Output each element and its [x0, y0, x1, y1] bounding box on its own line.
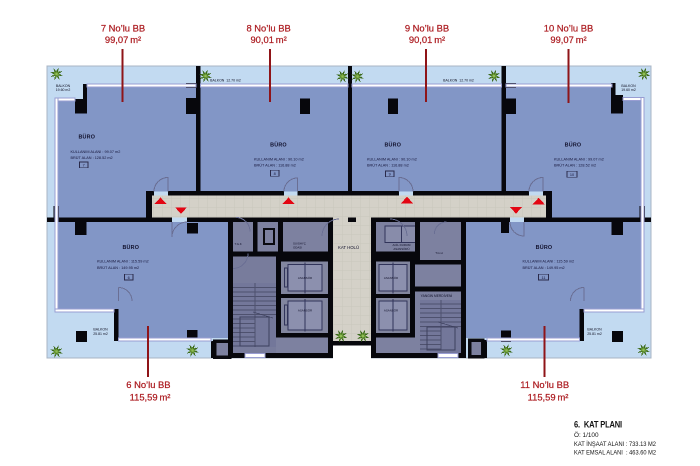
svg-text:10: 10 — [570, 173, 574, 177]
svg-text:BÜRO: BÜRO — [122, 244, 139, 251]
svg-text:BALKON: BALKON — [93, 328, 108, 332]
svg-text:BALKON: BALKON — [56, 84, 71, 88]
svg-text:BALKON 12.70 m2: BALKON 12.70 m2 — [210, 79, 241, 83]
svg-text:25.81 m2: 25.81 m2 — [587, 332, 602, 336]
svg-text:KULLANIM ALANI : 99.07 m2: KULLANIM ALANI : 99.07 m2 — [71, 150, 121, 154]
svg-text:T.G.H: T.G.H — [435, 251, 442, 255]
svg-text:9: 9 — [389, 173, 391, 177]
svg-text:KULLANIM ALANI : 99.07 m2: KULLANIM ALANI : 99.07 m2 — [554, 158, 604, 162]
svg-text:ASANSÖR: ASANSÖR — [384, 276, 398, 280]
svg-text:KULLANIM ALANI : 115.59 m2: KULLANIM ALANI : 115.59 m2 — [97, 259, 149, 263]
svg-text:BÜRO: BÜRO — [270, 141, 287, 148]
svg-text:KULLANIM ALANI : 115.59 m2: KULLANIM ALANI : 115.59 m2 — [523, 259, 575, 263]
svg-text:7 No’lu BB: 7 No’lu BB — [101, 23, 145, 34]
svg-text:6 No’lu BB: 6 No’lu BB — [126, 379, 170, 390]
svg-text:BRÜT ALAN : 149.95 m2: BRÜT ALAN : 149.95 m2 — [97, 266, 139, 270]
svg-text:99,07 m²: 99,07 m² — [105, 34, 141, 45]
svg-text:90,01 m²: 90,01 m² — [409, 34, 445, 45]
svg-text:ASANSÖRÜ: ASANSÖRÜ — [393, 247, 409, 251]
svg-text:6. KAT PLANI: 6. KAT PLANI — [574, 419, 622, 430]
svg-text:KULLANIM ALANI : 90.10 m2: KULLANIM ALANI : 90.10 m2 — [254, 158, 304, 162]
svg-text:KAT EMSAL ALANI : 463.60 M2: KAT EMSAL ALANI : 463.60 M2 — [574, 450, 656, 457]
svg-text:BRÜT ALAN : 128.52 m2: BRÜT ALAN : 128.52 m2 — [71, 156, 113, 160]
svg-text:BÜRO: BÜRO — [565, 141, 582, 148]
svg-text:115,59 m²: 115,59 m² — [528, 392, 569, 403]
svg-text:BRÜT ALAN : 149.95 m2: BRÜT ALAN : 149.95 m2 — [523, 266, 565, 270]
svg-text:BALKON: BALKON — [621, 84, 636, 88]
svg-text:99,07 m²: 99,07 m² — [550, 34, 586, 45]
svg-text:BRÜT ALAN : 128.52 m2: BRÜT ALAN : 128.52 m2 — [554, 163, 596, 167]
svg-text:10 No’lu BB: 10 No’lu BB — [544, 23, 594, 34]
svg-text:KULLANIM ALANI : 90.10 m2: KULLANIM ALANI : 90.10 m2 — [367, 158, 417, 162]
svg-text:19.60 m2: 19.60 m2 — [621, 88, 636, 92]
svg-text:ASANSÖR: ASANSÖR — [298, 309, 312, 313]
svg-text:BRÜT ALAN : 116.88 m2: BRÜT ALAN : 116.88 m2 — [254, 163, 296, 167]
svg-text:11: 11 — [542, 276, 546, 280]
svg-text:BALKON: BALKON — [587, 328, 602, 332]
svg-text:ODASI: ODASI — [293, 245, 302, 249]
svg-text:7: 7 — [83, 164, 85, 168]
svg-text:T.G.K: T.G.K — [235, 242, 242, 246]
svg-text:25.81 m2: 25.81 m2 — [93, 332, 108, 336]
svg-text:8 No’lu BB: 8 No’lu BB — [246, 23, 290, 34]
svg-text:BÜRO: BÜRO — [536, 244, 553, 251]
svg-text:YANGIN MERDİVENİ: YANGIN MERDİVENİ — [421, 293, 453, 298]
svg-text:11 No’lu BB: 11 No’lu BB — [520, 379, 569, 390]
svg-text:9 No’lu BB: 9 No’lu BB — [405, 23, 449, 34]
svg-text:19.60 m2: 19.60 m2 — [56, 88, 71, 92]
svg-text:KAT İNŞAAT ALANI : 733.13 M2: KAT İNŞAAT ALANI : 733.13 M2 — [574, 439, 656, 448]
svg-text:BALKON 12.70 m2: BALKON 12.70 m2 — [443, 79, 474, 83]
svg-text:BÜRO: BÜRO — [78, 133, 95, 140]
svg-text:ASANSÖR: ASANSÖR — [384, 309, 398, 313]
svg-text:90,01 m²: 90,01 m² — [250, 34, 286, 45]
svg-text:Ö: 1/100: Ö: 1/100 — [574, 431, 599, 439]
svg-text:BRÜT ALAN : 116.88 m2: BRÜT ALAN : 116.88 m2 — [367, 163, 409, 167]
svg-text:8: 8 — [274, 172, 276, 176]
svg-text:115,59 m²: 115,59 m² — [130, 392, 171, 403]
svg-text:6: 6 — [128, 276, 130, 280]
svg-text:BÜRO: BÜRO — [384, 141, 401, 148]
svg-text:ASANSÖR: ASANSÖR — [298, 276, 312, 280]
svg-text:KAT HOLÜ: KAT HOLÜ — [338, 245, 359, 250]
